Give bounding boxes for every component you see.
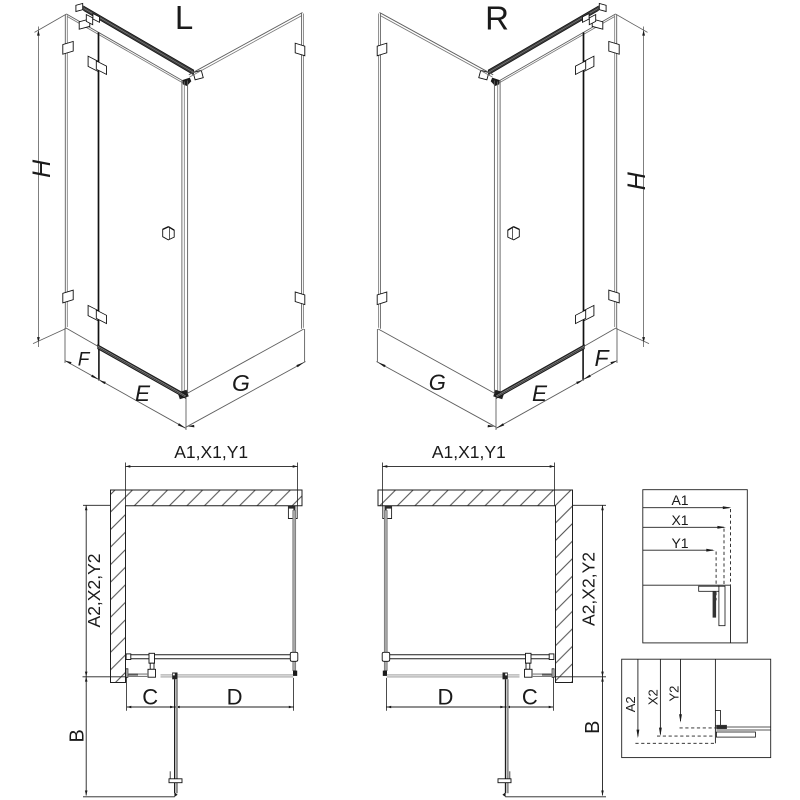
svg-text:A2,X2,Y2: A2,X2,Y2 (579, 552, 599, 626)
svg-text:X2: X2 (646, 689, 661, 705)
svg-text:C: C (522, 684, 538, 709)
svg-text:F: F (78, 350, 91, 371)
svg-text:G: G (429, 370, 446, 395)
svg-text:E: E (135, 381, 151, 406)
svg-text:G: G (232, 370, 250, 396)
svg-text:C: C (142, 684, 158, 709)
svg-text:L: L (175, 0, 193, 36)
svg-text:Y1: Y1 (671, 535, 688, 551)
svg-text:H: H (623, 171, 651, 190)
svg-text:Y2: Y2 (667, 686, 682, 702)
svg-text:B: B (67, 729, 89, 742)
svg-text:A2,X2,Y2: A2,X2,Y2 (84, 554, 104, 628)
svg-text:X1: X1 (671, 512, 688, 528)
svg-text:D: D (227, 684, 243, 709)
svg-text:A2: A2 (623, 696, 638, 712)
svg-text:A1,X1,Y1: A1,X1,Y1 (174, 442, 248, 462)
svg-text:H: H (28, 159, 56, 178)
svg-text:R: R (485, 0, 509, 37)
svg-text:D: D (437, 684, 453, 709)
svg-text:B: B (582, 721, 604, 734)
svg-text:A1,X1,Y1: A1,X1,Y1 (432, 442, 506, 462)
svg-text:E: E (532, 381, 548, 406)
svg-text:A1: A1 (671, 492, 688, 508)
svg-text:F: F (594, 345, 610, 371)
